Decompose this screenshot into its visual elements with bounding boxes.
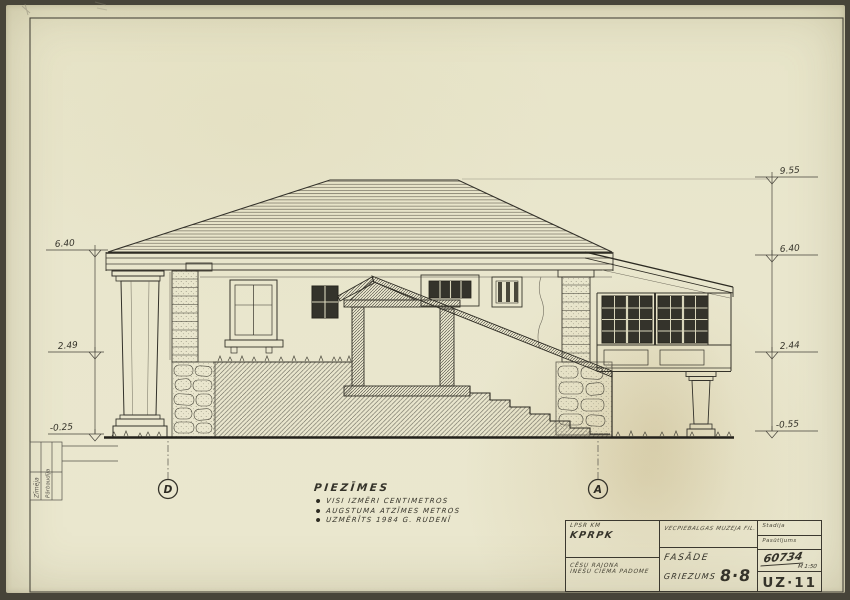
veranda-column — [686, 372, 716, 438]
porch-opening — [364, 307, 440, 386]
sheet-name-fasade: FASĀDE — [664, 553, 754, 563]
project-cell: VECPIEBALGAS MUZEJA FIL. — [660, 521, 757, 548]
level-label: 2.44 — [780, 341, 801, 352]
main-roof — [106, 180, 613, 277]
level-label: 2.49 — [58, 341, 79, 352]
drawing-scale: M 1:50 — [762, 564, 818, 570]
corner-pilaster-left — [172, 263, 212, 362]
level-label: 6.40 — [780, 244, 801, 255]
corner-pilaster-right — [558, 270, 594, 362]
bullet-icon — [316, 509, 320, 513]
order-label: Pasūtījums — [758, 536, 821, 550]
sheet-code: UZ·11 — [758, 572, 821, 591]
window-small-dark — [312, 286, 338, 318]
level-label: 9.55 — [780, 166, 801, 177]
level-label: 6.40 — [55, 239, 76, 250]
veranda-spandrel — [597, 345, 731, 372]
level-label: -0.25 — [50, 422, 74, 434]
note-item: AUGSTUMA ATZĪMES METROS — [314, 507, 535, 517]
wall-break-line — [538, 277, 544, 349]
bullet-icon — [316, 518, 320, 522]
axis-letter-a: A — [593, 484, 602, 496]
note-item: VISI IZMĒRI CENTIMETROS — [314, 497, 535, 507]
bullet-icon — [316, 499, 320, 503]
side-stamp: Zīmēja Pārbaudīja — [30, 442, 118, 500]
sheet-name-griezums: GRIEZUMS 8·8 — [663, 566, 755, 585]
title-block-org-column: LPSR KM KPRPK CĒSU RAJONA INEŠU CIEMA PA… — [566, 521, 660, 591]
org-name: KPRPK — [569, 530, 656, 541]
notes-block: PIEZĪMES VISI IZMĒRI CENTIMETROS AUGSTUM… — [314, 482, 534, 526]
level-label: -0.55 — [776, 419, 800, 431]
axis-letter-d: D — [164, 484, 173, 496]
scanned-drawing-sheet: 6.40 2.49 -0.25 9.55 6.40 2.44 -0.55 D A… — [0, 0, 850, 600]
sheet-name-cell: FASĀDE GRIEZUMS 8·8 — [660, 548, 757, 591]
portico-column — [112, 271, 167, 437]
client-line2: INEŠU CIEMA PADOME — [570, 569, 656, 575]
pencil-marks — [22, 2, 107, 15]
client-cell: CĒSU RAJONA INEŠU CIEMA PADOME — [566, 558, 659, 591]
org-abbreviation: LPSR KM — [570, 523, 656, 529]
stamp-row2: Pārbaudīja — [46, 468, 52, 498]
section-number: 8·8 — [719, 566, 753, 585]
veranda-roof — [585, 252, 733, 298]
window-barred — [492, 277, 522, 307]
veranda-glazing — [597, 292, 731, 371]
window-framed — [225, 280, 283, 353]
org-cell: LPSR KM KPRPK — [566, 521, 659, 558]
title-block-right-column: Stadija Pasūtījums 60734 M 1:50 UZ·11 — [758, 521, 821, 591]
notes-title: PIEZĪMES — [313, 482, 534, 494]
stage-label: Stadija — [758, 521, 821, 536]
order-number-cell: 60734 M 1:50 — [758, 550, 821, 572]
title-block-name-column: VECPIEBALGAS MUZEJA FIL. FASĀDE GRIEZUMS… — [660, 521, 758, 591]
rubble-foundation-left — [172, 362, 215, 437]
stamp-row1: Zīmēja — [34, 477, 41, 499]
note-item: UZMĒRĪTS 1984 G. RUDENĪ — [314, 516, 535, 526]
title-block: LPSR KM KPRPK CĒSU RAJONA INEŠU CIEMA PA… — [565, 520, 822, 592]
project-name: VECPIEBALGAS MUZEJA FIL. — [664, 526, 757, 532]
